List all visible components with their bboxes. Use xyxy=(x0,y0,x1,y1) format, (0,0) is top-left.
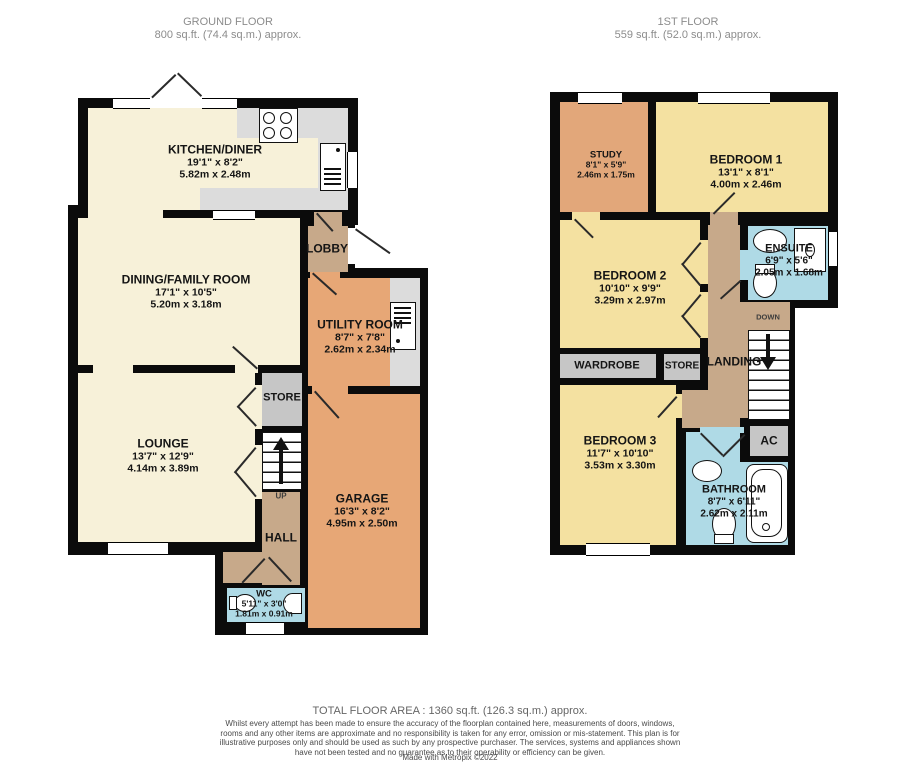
kitchen-sink-icon xyxy=(320,143,346,191)
front-door-opening xyxy=(348,228,355,264)
window xyxy=(202,98,237,109)
first-floor-title: 1ST FLOOR 559 sq.ft. (52.0 sq.m.) approx… xyxy=(615,16,762,42)
window xyxy=(698,92,770,104)
wardrobe-label: WARDROBE xyxy=(574,360,639,373)
window xyxy=(578,92,622,104)
front-door-leaf xyxy=(355,229,390,254)
bedroom2-opening xyxy=(700,292,708,338)
study-doorway xyxy=(572,212,600,220)
wc-label: WC 5'11" x 3'0" 1.81m x 0.91m xyxy=(235,590,293,619)
ground-floor-area: 800 sq.ft. (74.4 sq.m.) approx. xyxy=(155,29,302,42)
window xyxy=(347,152,358,188)
down-arrow-icon xyxy=(760,357,776,370)
dining-lounge-opening xyxy=(93,358,133,380)
lounge-opening xyxy=(255,385,262,429)
store-first-label: STORE xyxy=(665,360,699,373)
ground-floor-title: GROUND FLOOR 800 sq.ft. (74.4 sq.m.) app… xyxy=(155,16,302,42)
window xyxy=(108,542,168,555)
bedroom3-doorway xyxy=(676,394,682,418)
kitchen-counter-bottom xyxy=(200,188,348,210)
garage-label: GARAGE 16'3" x 8'2" 4.95m x 2.50m xyxy=(326,493,397,530)
window xyxy=(828,232,838,266)
stove-icon xyxy=(259,108,298,143)
up-arrow-stem xyxy=(279,450,283,484)
kitchen-label: KITCHEN/DINER 19'1" x 8'2" 5.82m x 2.48m xyxy=(168,144,262,181)
study-label: STUDY 8'1" x 5'9" 2.46m x 1.75m xyxy=(577,151,635,180)
window xyxy=(586,543,650,556)
bedroom2-label: BEDROOM 2 10'10" x 9'9" 3.29m x 2.97m xyxy=(594,270,667,307)
lobby-label: LOBBY xyxy=(306,243,348,256)
credit-text: Made with Metropix ©2022 xyxy=(250,753,650,762)
ensuite-label: ENSUITE 6'9" x 5'6" 2.05m x 1.68m xyxy=(755,243,823,280)
toilet-cistern xyxy=(714,534,734,544)
ac-label: AC xyxy=(760,435,777,448)
hall-label: HALL xyxy=(265,532,297,545)
window xyxy=(246,622,284,635)
up-arrow-icon xyxy=(273,437,289,450)
bathroom-doorway xyxy=(700,427,744,433)
ground-floor-title-line: GROUND FLOOR xyxy=(155,16,302,29)
kitchen-dining-opening xyxy=(88,200,163,228)
floorplan-canvas: GROUND FLOOR 800 sq.ft. (74.4 sq.m.) app… xyxy=(0,0,900,765)
window xyxy=(113,98,150,109)
total-floor-area: TOTAL FLOOR AREA : 1360 sq.ft. (126.3 sq… xyxy=(150,705,750,717)
bedroom3-label: BEDROOM 3 11'7" x 10'10" 3.53m x 3.30m xyxy=(584,435,657,472)
up-label: UP xyxy=(275,492,286,501)
lounge-label: LOUNGE 13'7" x 12'9" 4.14m x 3.89m xyxy=(127,438,198,475)
ensuite-doorway xyxy=(740,250,748,280)
first-floor-area: 559 sq.ft. (52.0 sq.m.) approx. xyxy=(615,29,762,42)
bathroom-label: BATHROOM 8'7" x 6'11" 2.62m x 2.11m xyxy=(700,484,767,521)
first-floor-title-line: 1ST FLOOR xyxy=(615,16,762,29)
down-label: DOWN xyxy=(756,313,780,322)
utility-label: UTILITY ROOM 8'7" x 7'8" 2.62m x 2.34m xyxy=(317,319,403,356)
disclaimer-text: Whilst every attempt has been made to en… xyxy=(215,719,685,757)
bedroom1-label: BEDROOM 1 13'1" x 8'1" 4.00m x 2.46m xyxy=(710,154,783,191)
down-arrow-stem xyxy=(766,334,770,358)
bedroom2-opening xyxy=(700,240,708,284)
patio-door-opening xyxy=(150,97,202,108)
lounge-hall-opening xyxy=(255,445,262,499)
patio-door-leaf xyxy=(151,74,176,98)
dining-label: DINING/FAMILY ROOM 17'1" x 10'5" 5.20m x… xyxy=(122,274,251,311)
patio-door-leaf xyxy=(177,73,202,97)
store-ground-label: STORE xyxy=(263,392,301,405)
landing-label: LANDING xyxy=(707,356,762,369)
landing-corridor xyxy=(708,225,740,302)
basin-icon xyxy=(692,460,722,482)
landing-lower xyxy=(682,390,708,428)
internal-window xyxy=(213,210,255,220)
